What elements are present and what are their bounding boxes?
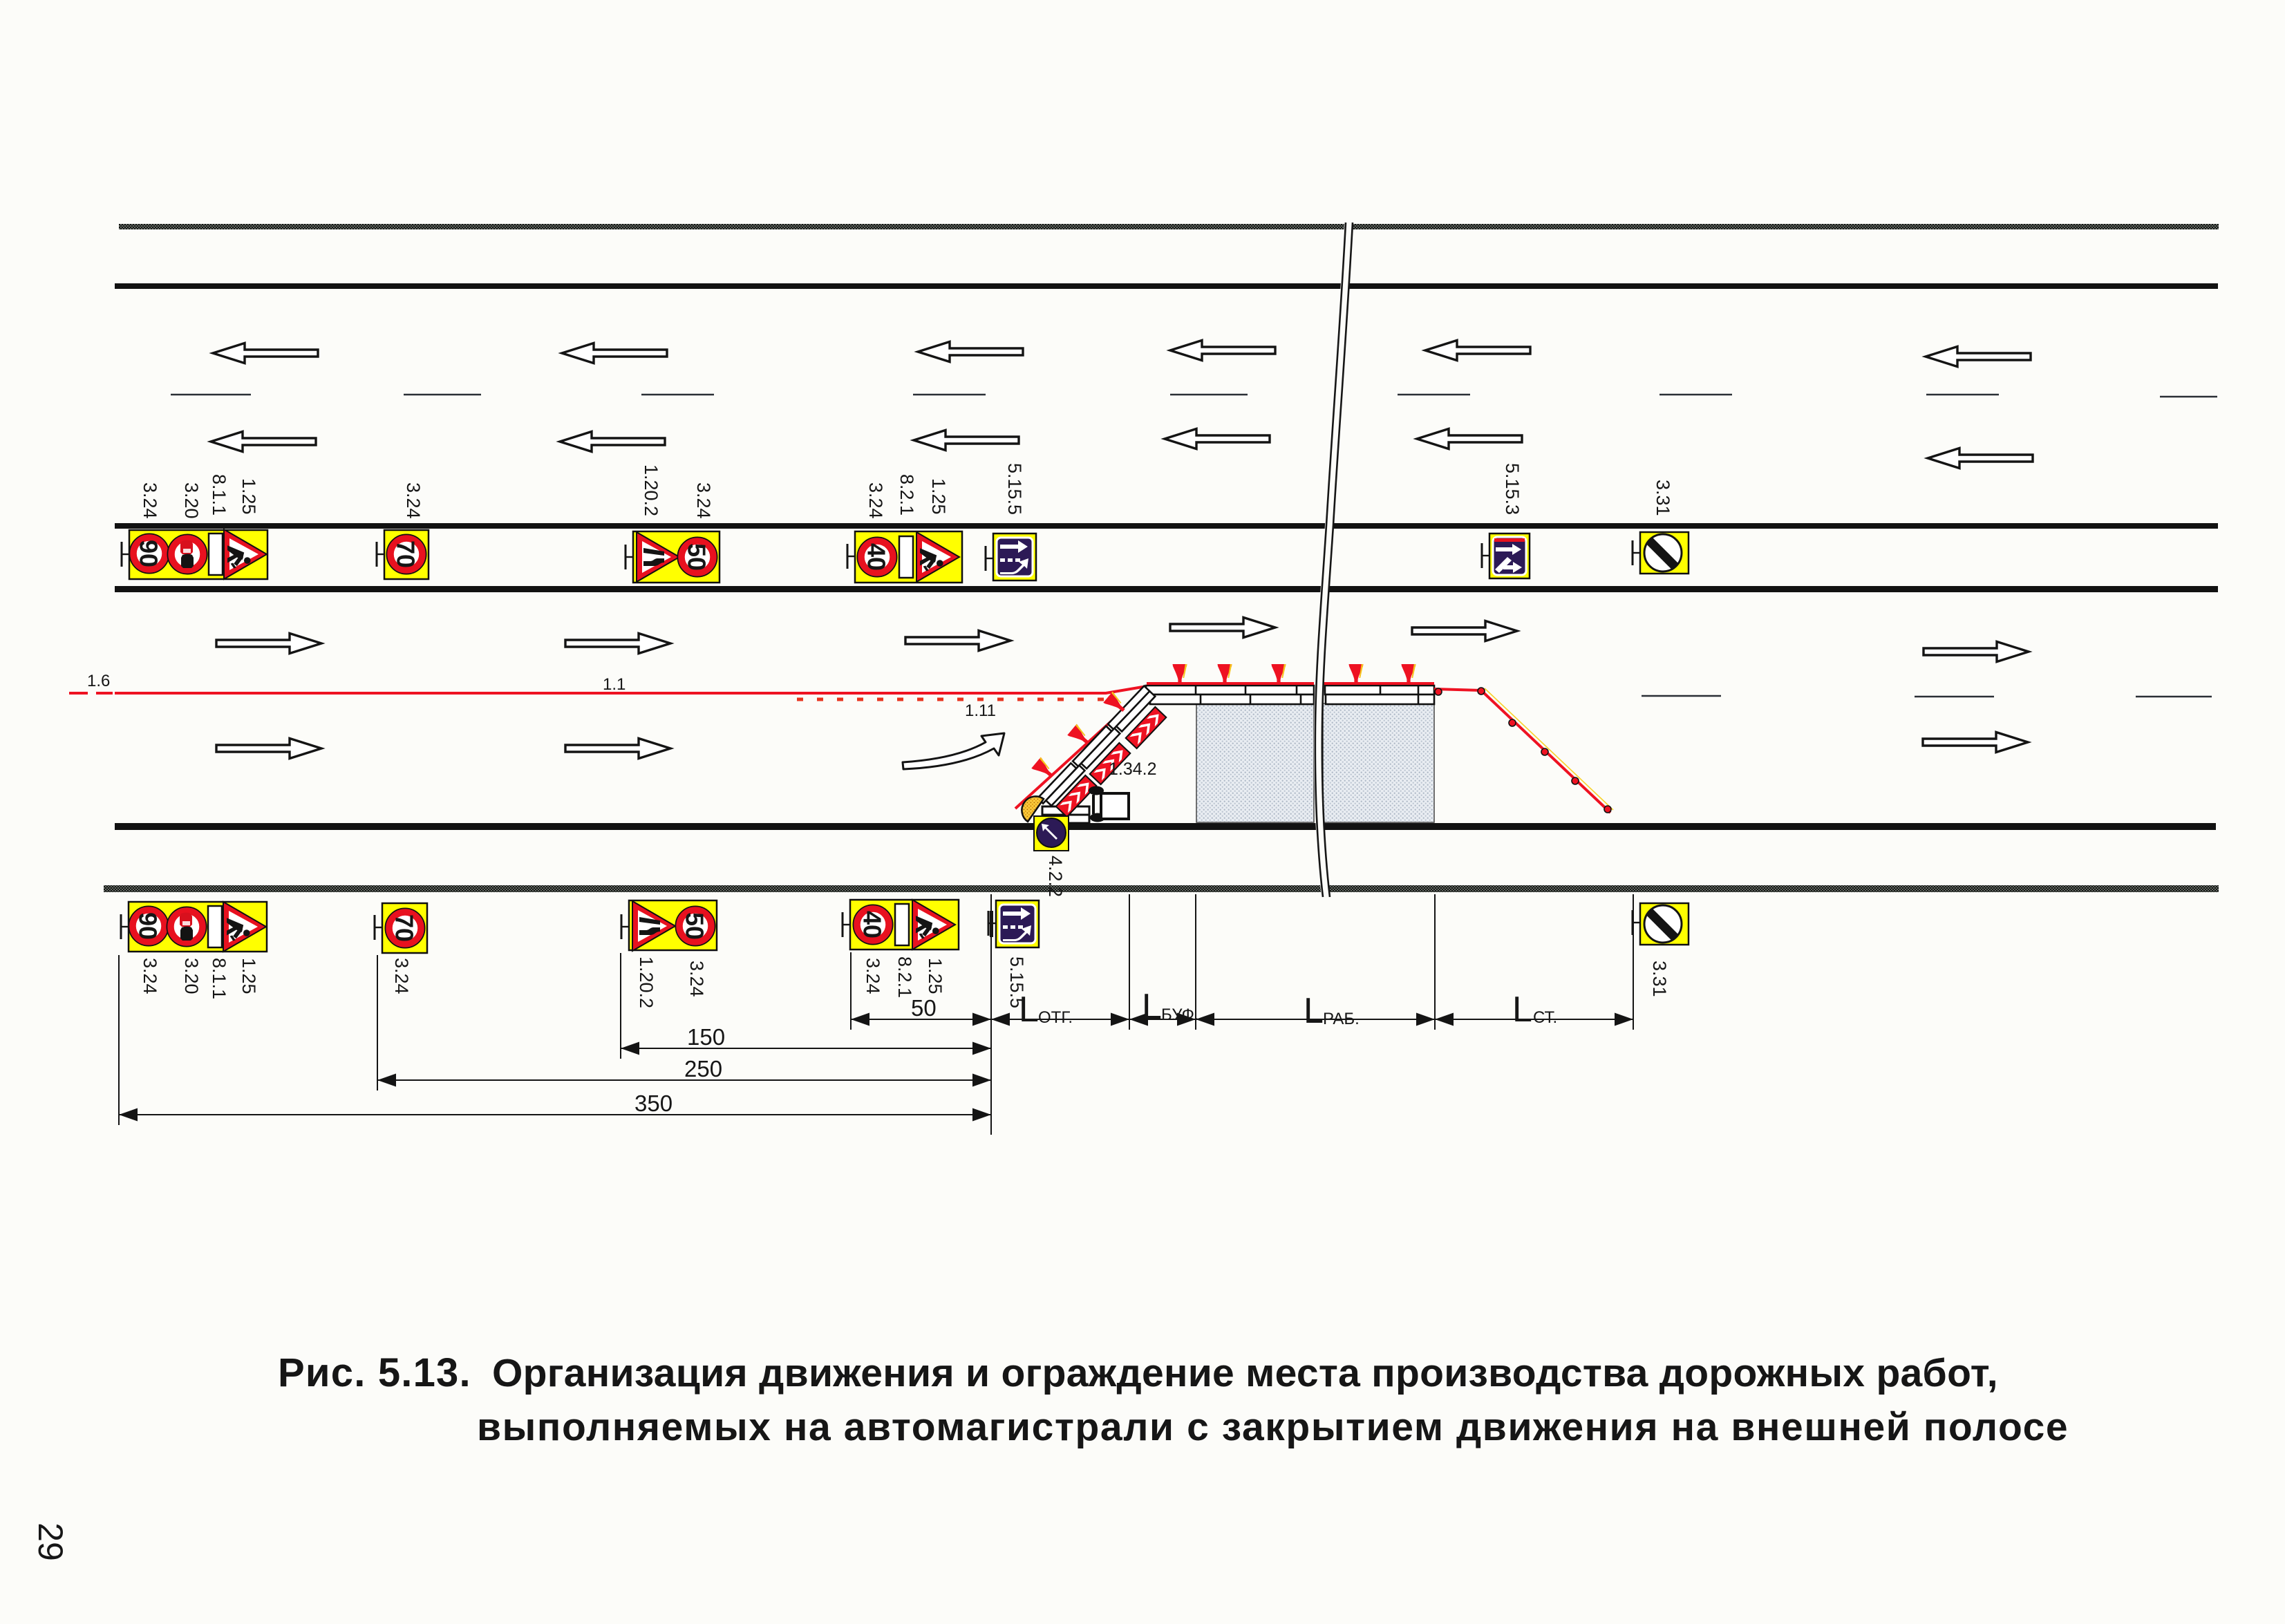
- svg-text:3.31: 3.31: [1653, 480, 1673, 516]
- svg-text:4.2.2: 4.2.2: [1045, 856, 1066, 897]
- svg-text:L: L: [1142, 987, 1162, 1027]
- svg-text:250: 250: [684, 1056, 722, 1082]
- svg-text:150: 150: [687, 1024, 725, 1050]
- svg-text:29: 29: [31, 1522, 70, 1561]
- svg-text:L: L: [1304, 991, 1324, 1031]
- svg-text:3.31: 3.31: [1649, 961, 1670, 997]
- svg-text:выполняемых на автомагистрали: выполняемых на автомагистрали с закрытие…: [477, 1405, 2069, 1449]
- svg-text:3.24: 3.24: [403, 482, 424, 519]
- svg-text:3.24: 3.24: [686, 961, 707, 997]
- svg-text:8.2.1: 8.2.1: [894, 956, 915, 998]
- svg-text:8.2.1: 8.2.1: [896, 474, 917, 516]
- svg-text:3.24: 3.24: [140, 482, 160, 519]
- svg-text:1.20.2: 1.20.2: [636, 956, 657, 1008]
- svg-text:3.20: 3.20: [181, 958, 202, 994]
- svg-text:СТ.: СТ.: [1533, 1008, 1557, 1027]
- svg-text:1.25: 1.25: [238, 478, 259, 515]
- svg-text:1.25: 1.25: [928, 478, 949, 515]
- svg-text:1.1: 1.1: [603, 675, 626, 694]
- svg-text:1.34.2: 1.34.2: [1109, 759, 1157, 779]
- svg-text:70: 70: [391, 914, 419, 942]
- svg-text:3.24: 3.24: [140, 958, 160, 994]
- svg-text:3.24: 3.24: [391, 958, 412, 994]
- svg-text:1.25: 1.25: [238, 958, 259, 994]
- svg-text:1.25: 1.25: [925, 958, 946, 994]
- svg-text:90: 90: [135, 540, 163, 567]
- svg-text:70: 70: [392, 540, 420, 568]
- svg-text:БУФ.: БУФ.: [1161, 1005, 1199, 1024]
- svg-text:350: 350: [634, 1090, 673, 1116]
- svg-text:Организация движения и огражде: Организация движения и ограждение места …: [492, 1351, 1998, 1395]
- svg-text:40: 40: [863, 543, 891, 571]
- svg-text:L: L: [1019, 990, 1039, 1030]
- svg-text:3.20: 3.20: [181, 482, 202, 519]
- svg-text:40: 40: [858, 911, 887, 938]
- svg-text:5.15.3: 5.15.3: [1502, 463, 1523, 515]
- svg-text:1.6: 1.6: [87, 672, 110, 690]
- svg-text:50: 50: [681, 912, 709, 940]
- svg-text:РАБ.: РАБ.: [1323, 1010, 1360, 1028]
- svg-text:Рис. 5.13.: Рис. 5.13.: [278, 1350, 471, 1395]
- svg-text:5.15.5: 5.15.5: [1004, 463, 1025, 515]
- svg-text:3.24: 3.24: [693, 482, 714, 519]
- svg-text:ОТГ.: ОТГ.: [1038, 1008, 1073, 1027]
- svg-text:L: L: [1512, 990, 1532, 1030]
- svg-text:8.1.1: 8.1.1: [209, 958, 229, 999]
- svg-text:1.20.2: 1.20.2: [641, 464, 661, 516]
- svg-text:3.24: 3.24: [865, 482, 886, 519]
- svg-text:50: 50: [683, 543, 711, 571]
- svg-text:90: 90: [134, 912, 162, 940]
- svg-text:50: 50: [911, 995, 937, 1021]
- svg-text:1.11: 1.11: [965, 701, 996, 720]
- svg-text:3.24: 3.24: [863, 958, 883, 994]
- svg-text:8.1.1: 8.1.1: [209, 474, 229, 516]
